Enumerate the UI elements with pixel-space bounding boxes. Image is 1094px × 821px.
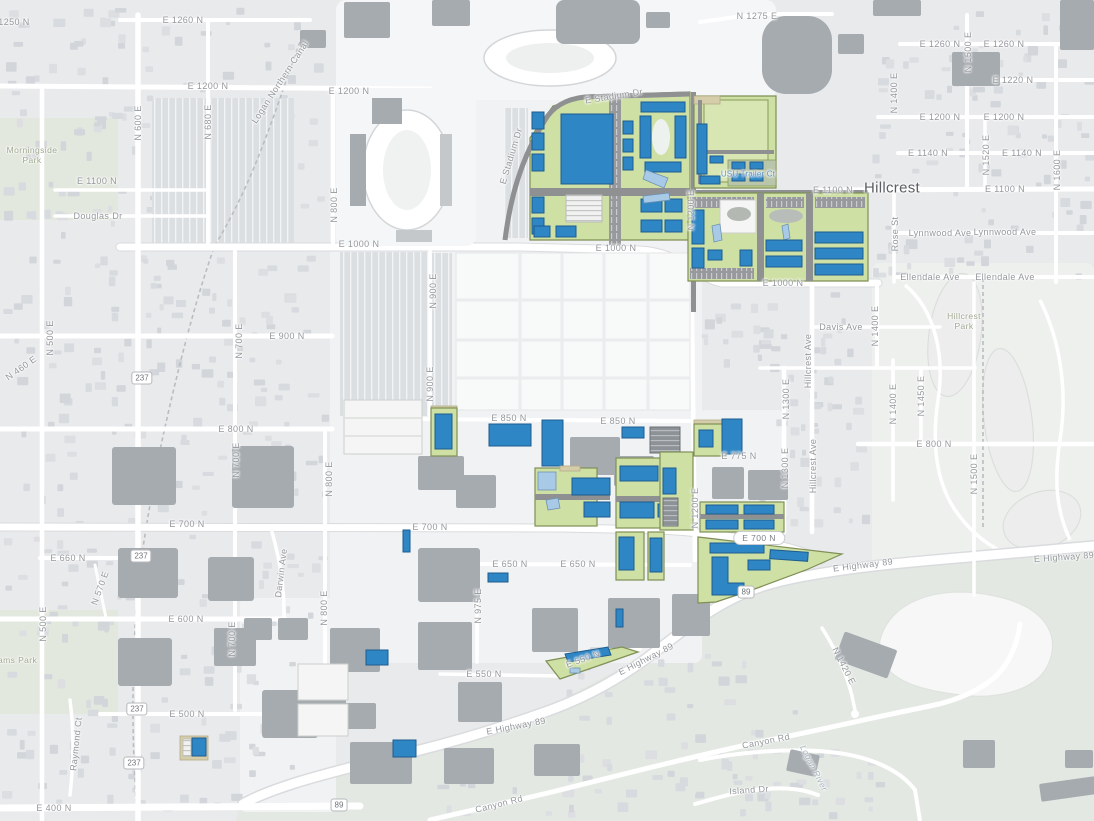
parking-lot [432, 253, 452, 411]
stadium-complex [336, 88, 476, 246]
morningside-park-area [0, 118, 118, 220]
parking-lot [340, 252, 428, 416]
map-graphics [0, 0, 1094, 821]
parking-lot [152, 98, 294, 244]
map-canvas[interactable]: 1250 NE 1260 NE 1200 NE 1200 NE 1100 NDo… [0, 0, 1094, 821]
pond-area [880, 592, 1053, 696]
campus-quad [456, 253, 690, 410]
